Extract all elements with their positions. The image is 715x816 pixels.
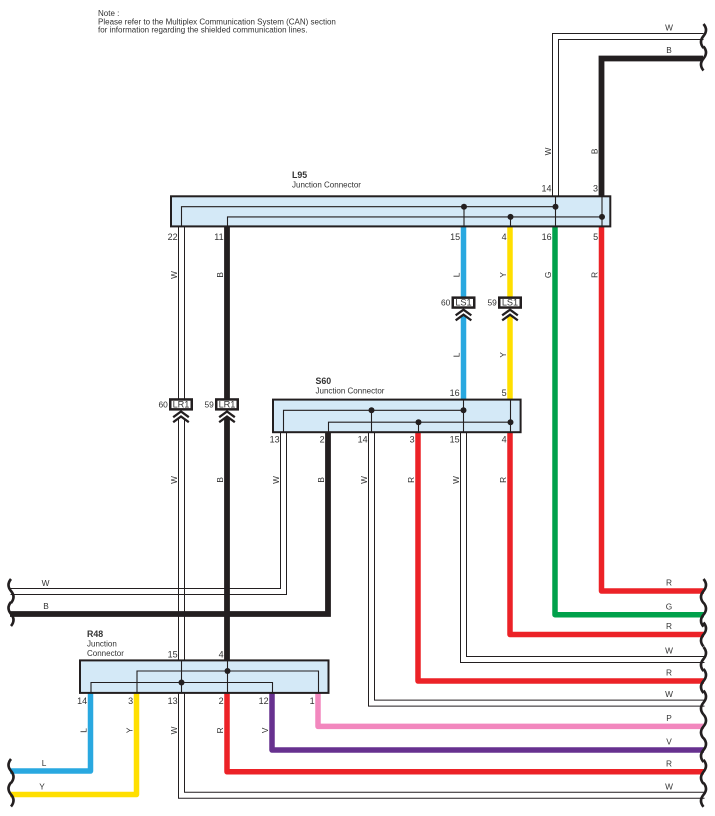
svg-text:W: W — [169, 726, 179, 734]
svg-text:V: V — [666, 737, 672, 747]
svg-text:W: W — [359, 476, 369, 484]
svg-text:L95: L95 — [292, 170, 307, 180]
svg-text:R: R — [666, 758, 672, 768]
svg-text:R: R — [666, 621, 672, 631]
svg-text:2: 2 — [320, 435, 325, 445]
svg-text:16: 16 — [450, 388, 460, 398]
svg-text:LR1: LR1 — [173, 400, 190, 410]
svg-text:W: W — [169, 476, 179, 484]
svg-text:3: 3 — [593, 184, 598, 194]
svg-text:60: 60 — [158, 400, 168, 410]
svg-text:1: 1 — [310, 696, 315, 706]
svg-text:Y: Y — [498, 272, 508, 278]
svg-text:12: 12 — [259, 696, 269, 706]
svg-text:R48: R48 — [87, 629, 103, 639]
svg-text:15: 15 — [450, 435, 460, 445]
svg-text:Y: Y — [39, 782, 45, 792]
svg-text:W: W — [451, 476, 461, 484]
svg-text:W: W — [42, 578, 50, 588]
svg-text:LR1: LR1 — [219, 400, 236, 410]
svg-text:R: R — [590, 272, 600, 278]
svg-text:4: 4 — [502, 435, 507, 445]
svg-text:R: R — [498, 477, 508, 483]
svg-text:B: B — [316, 477, 326, 483]
svg-text:L: L — [42, 758, 47, 768]
svg-text:Connector: Connector — [87, 649, 124, 658]
svg-text:59: 59 — [204, 400, 214, 410]
svg-text:G: G — [543, 272, 553, 278]
svg-text:Junction Connector: Junction Connector — [292, 181, 361, 190]
svg-text:13: 13 — [168, 696, 178, 706]
svg-text:4: 4 — [219, 649, 224, 659]
svg-text:W: W — [271, 476, 281, 484]
svg-text:15: 15 — [168, 649, 178, 659]
svg-text:L: L — [79, 728, 89, 733]
svg-text:R: R — [406, 477, 416, 483]
svg-text:for information regarding the: for information regarding the shielded c… — [98, 26, 307, 35]
svg-text:B: B — [590, 148, 600, 154]
svg-text:B: B — [215, 272, 225, 278]
svg-text:22: 22 — [168, 232, 178, 242]
svg-text:P: P — [666, 713, 672, 723]
svg-text:S60: S60 — [316, 376, 332, 386]
svg-text:Junction Connector: Junction Connector — [316, 387, 385, 396]
svg-text:B: B — [43, 601, 49, 611]
svg-text:W: W — [543, 147, 553, 155]
svg-text:13: 13 — [270, 435, 280, 445]
svg-text:60: 60 — [441, 298, 451, 308]
svg-text:R: R — [666, 668, 672, 678]
svg-text:14: 14 — [541, 184, 551, 194]
svg-text:R: R — [666, 578, 672, 588]
svg-text:3: 3 — [410, 435, 415, 445]
svg-text:G: G — [666, 601, 672, 611]
svg-text:B: B — [666, 45, 672, 55]
svg-text:59: 59 — [487, 298, 497, 308]
svg-text:L: L — [452, 272, 462, 277]
svg-text:W: W — [665, 781, 673, 791]
svg-text:Y: Y — [498, 352, 508, 358]
svg-text:2: 2 — [219, 696, 224, 706]
svg-text:LS1: LS1 — [502, 298, 518, 308]
svg-text:Junction: Junction — [87, 640, 117, 649]
svg-text:16: 16 — [542, 232, 552, 242]
svg-text:5: 5 — [593, 232, 598, 242]
svg-text:14: 14 — [77, 696, 87, 706]
svg-text:LS1: LS1 — [455, 298, 471, 308]
svg-text:W: W — [665, 23, 673, 33]
svg-text:11: 11 — [214, 232, 223, 242]
svg-text:L: L — [452, 352, 462, 357]
svg-text:15: 15 — [450, 232, 460, 242]
svg-text:V: V — [260, 727, 270, 733]
svg-text:R: R — [215, 727, 225, 733]
svg-text:B: B — [215, 477, 225, 483]
svg-text:4: 4 — [502, 232, 507, 242]
svg-text:14: 14 — [358, 435, 368, 445]
svg-text:W: W — [665, 689, 673, 699]
svg-text:Y: Y — [125, 727, 135, 733]
svg-text:W: W — [665, 646, 673, 656]
svg-text:3: 3 — [128, 696, 133, 706]
svg-text:5: 5 — [502, 388, 507, 398]
svg-text:W: W — [169, 271, 179, 279]
